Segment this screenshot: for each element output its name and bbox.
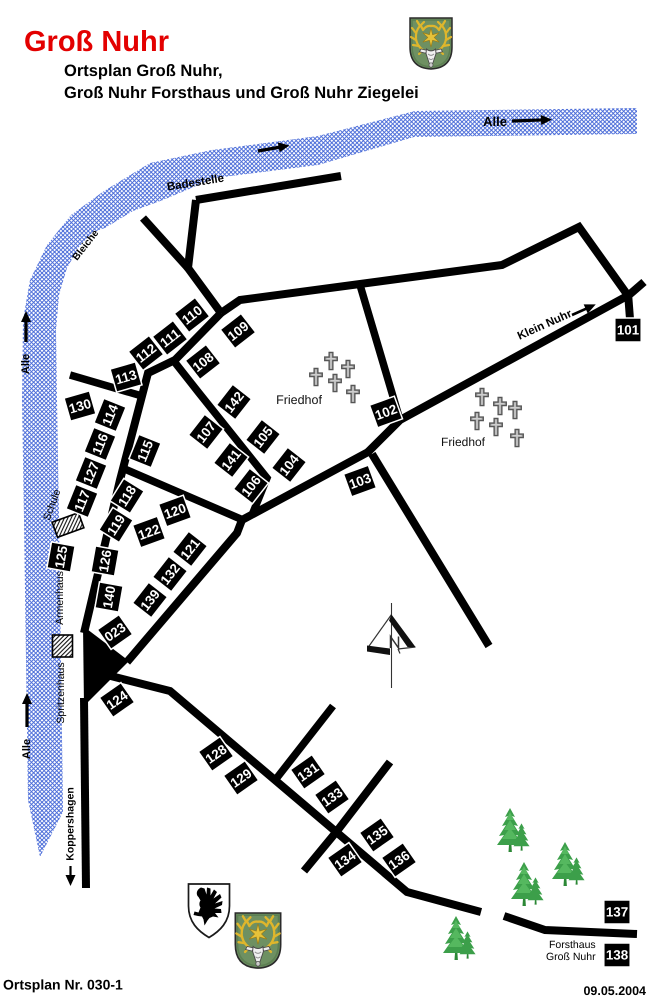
svg-text:Groß Nuhr: Groß Nuhr xyxy=(24,26,169,58)
svg-text:Armenhaus: Armenhaus xyxy=(54,571,66,625)
svg-text:137: 137 xyxy=(606,905,628,920)
svg-text:Koppershagen: Koppershagen xyxy=(65,787,77,861)
svg-text:Ortsplan Nr. 030-1: Ortsplan Nr. 030-1 xyxy=(3,977,123,993)
svg-text:Friedhof: Friedhof xyxy=(276,393,322,407)
svg-text:Spritzenhaus: Spritzenhaus xyxy=(55,662,67,723)
svg-text:138: 138 xyxy=(606,948,629,963)
svg-text:Ortsplan Groß Nuhr,: Ortsplan Groß Nuhr, xyxy=(64,62,223,80)
svg-text:Forsthaus: Forsthaus xyxy=(549,939,596,951)
svg-text:09.05.2004: 09.05.2004 xyxy=(583,984,646,998)
svg-text:101: 101 xyxy=(617,323,640,338)
svg-text:Alle: Alle xyxy=(483,114,507,129)
svg-text:Groß Nuhr Forsthaus und Groß N: Groß Nuhr Forsthaus und Groß Nuhr Ziegel… xyxy=(64,84,419,102)
svg-text:Alle: Alle xyxy=(20,354,32,374)
svg-text:Friedhof: Friedhof xyxy=(441,435,486,449)
svg-text:Alle: Alle xyxy=(21,739,33,759)
svg-text:Groß Nuhr: Groß Nuhr xyxy=(546,951,596,963)
